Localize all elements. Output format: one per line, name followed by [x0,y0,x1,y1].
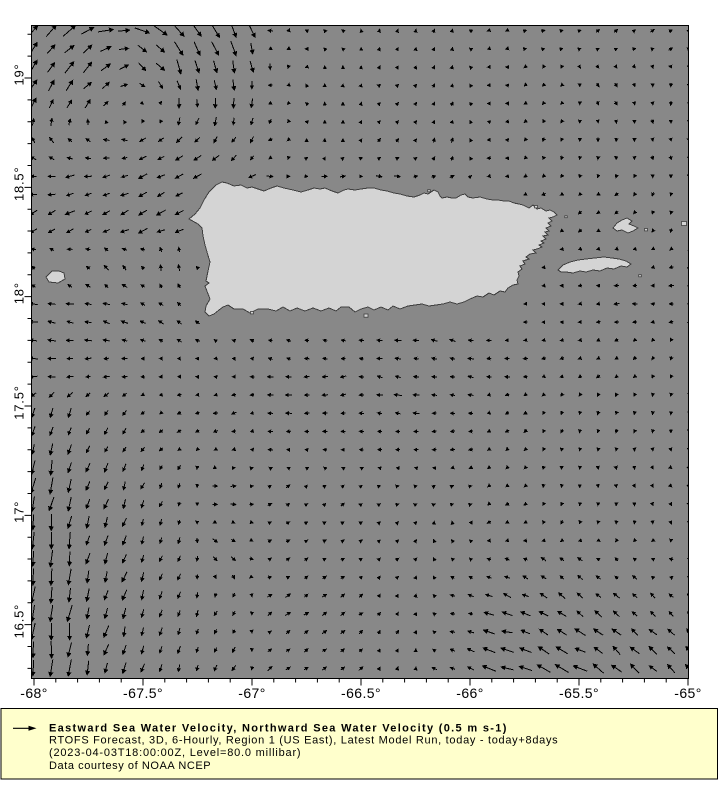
svg-text:-66°: -66° [456,685,483,701]
svg-text:RTOFS Forecast, 3D, 6-Hourly,: RTOFS Forecast, 3D, 6-Hourly, Region 1 (… [49,735,558,747]
svg-text:-65°: -65° [674,685,701,701]
svg-text:18.5°: 18.5° [11,167,26,202]
svg-text:-67.5°: -67.5° [123,685,163,701]
svg-text:-66.5°: -66.5° [341,685,381,701]
svg-text:16.5°: 16.5° [11,604,26,639]
svg-text:Eastward Sea Water Velocity, N: Eastward Sea Water Velocity, Northward S… [49,722,508,734]
svg-text:-68°: -68° [20,685,47,701]
svg-text:(2023-04-03T18:00:00Z, Level=8: (2023-04-03T18:00:00Z, Level=80.0 millib… [49,747,301,759]
svg-text:19°: 19° [11,63,26,85]
svg-text:17.5°: 17.5° [11,385,26,420]
svg-text:17°: 17° [11,501,26,523]
svg-text:Data courtesy of NOAA NCEP: Data courtesy of NOAA NCEP [49,760,211,772]
svg-text:-65.5°: -65.5° [559,685,599,701]
svg-text:-67°: -67° [238,685,265,701]
svg-text:18°: 18° [11,282,26,304]
